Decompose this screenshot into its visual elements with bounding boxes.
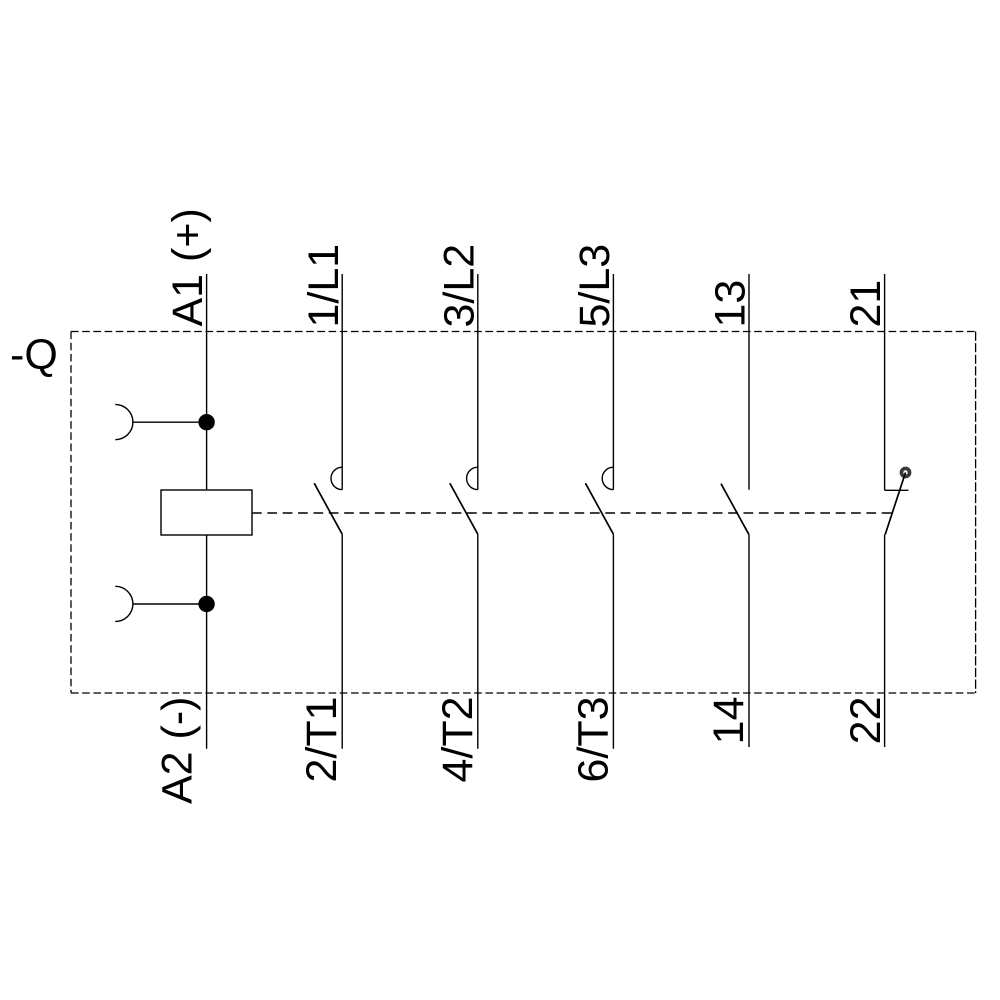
svg-text:2/T1: 2/T1 [298,697,346,783]
svg-text:13: 13 [707,280,755,328]
svg-text:22: 22 [842,697,890,745]
svg-text:A2 (-): A2 (-) [154,697,202,805]
svg-text:5/L3: 5/L3 [571,244,619,328]
svg-text:14: 14 [705,697,753,745]
svg-text:21: 21 [842,280,890,328]
svg-text:-Q: -Q [10,331,58,379]
svg-text:1/L1: 1/L1 [300,244,348,328]
svg-text:4/T2: 4/T2 [434,697,482,783]
svg-text:A1 (+): A1 (+) [164,208,212,326]
svg-text:6/T3: 6/T3 [569,697,617,783]
svg-text:3/L2: 3/L2 [435,244,483,328]
